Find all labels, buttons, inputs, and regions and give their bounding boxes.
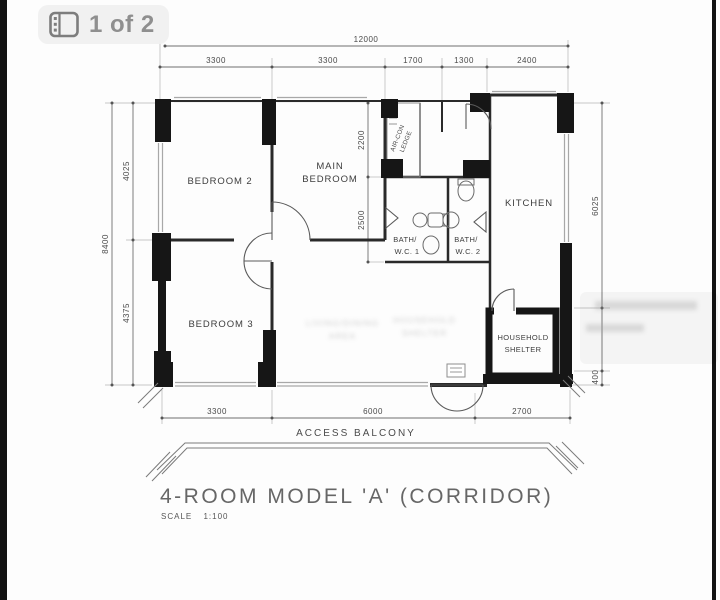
dim-top-overall: 12000 bbox=[354, 35, 379, 44]
label-shelter-2: SHELTER bbox=[505, 345, 542, 354]
watermark-bar bbox=[595, 301, 697, 310]
dim-top-3: 1700 bbox=[403, 56, 423, 65]
dim-bottom-2: 6000 bbox=[363, 407, 383, 416]
watermark-ghost-b: HOUSEHOLD SHELTER bbox=[392, 314, 457, 340]
plan-scale: SCALE 1:100 bbox=[161, 512, 228, 521]
watermark-ghost-a: LIVING/DINING AREA bbox=[300, 317, 385, 343]
dim-top-5: 2400 bbox=[517, 56, 537, 65]
label-bedroom3: BEDROOM 3 bbox=[188, 319, 253, 330]
photo-counter-badge: 1 of 2 bbox=[38, 5, 169, 44]
door-arcs bbox=[244, 104, 514, 411]
gallery-icon bbox=[49, 11, 79, 38]
label-bath2-1: BATH/ bbox=[454, 235, 478, 244]
watermark-bar bbox=[586, 324, 644, 332]
dim-bottom-1: 3300 bbox=[207, 407, 227, 416]
dim-right-2: 400 bbox=[591, 370, 600, 385]
photo-counter-label: 1 of 2 bbox=[89, 13, 155, 37]
dim-inner-1: 2200 bbox=[357, 130, 366, 150]
floor-plan-photo[interactable]: 12000 3300 3300 1700 1300 2400 8400 4025… bbox=[7, 0, 712, 600]
label-kitchen: KITCHEN bbox=[505, 198, 553, 209]
label-bedroom2: BEDROOM 2 bbox=[187, 176, 252, 187]
label-main-bedroom-2: BEDROOM bbox=[302, 174, 357, 185]
photo-viewer: 12000 3300 3300 1700 1300 2400 8400 4025… bbox=[0, 0, 720, 600]
dim-left-1: 4025 bbox=[122, 161, 131, 181]
dim-top-4: 1300 bbox=[454, 56, 474, 65]
label-access-balcony: ACCESS BALCONY bbox=[296, 428, 416, 439]
plan-title: 4-ROOM MODEL 'A' (CORRIDOR) bbox=[160, 485, 553, 508]
dim-inner-2: 2500 bbox=[357, 210, 366, 230]
label-bath2-2: W.C. 2 bbox=[456, 247, 481, 256]
dim-left-overall: 8400 bbox=[101, 234, 110, 254]
dim-bottom-3: 2700 bbox=[512, 407, 532, 416]
dim-right-1: 6025 bbox=[591, 196, 600, 216]
dim-top-2: 3300 bbox=[318, 56, 338, 65]
label-shelter-1: HOUSEHOLD bbox=[497, 333, 548, 342]
bathroom-fixtures bbox=[413, 179, 474, 377]
dim-top-1: 3300 bbox=[206, 56, 226, 65]
label-main-bedroom-1: MAIN bbox=[316, 161, 343, 172]
household-shelter-walls bbox=[489, 311, 556, 376]
dimension-labels: 12000 3300 3300 1700 1300 2400 8400 4025… bbox=[101, 35, 600, 416]
label-bath1-2: W.C. 1 bbox=[395, 247, 420, 256]
dim-left-2: 4375 bbox=[122, 303, 131, 323]
room-labels: BEDROOM 2 MAIN BEDROOM BEDROOM 3 KITCHEN… bbox=[187, 124, 553, 439]
label-bath1-1: BATH/ bbox=[393, 235, 417, 244]
